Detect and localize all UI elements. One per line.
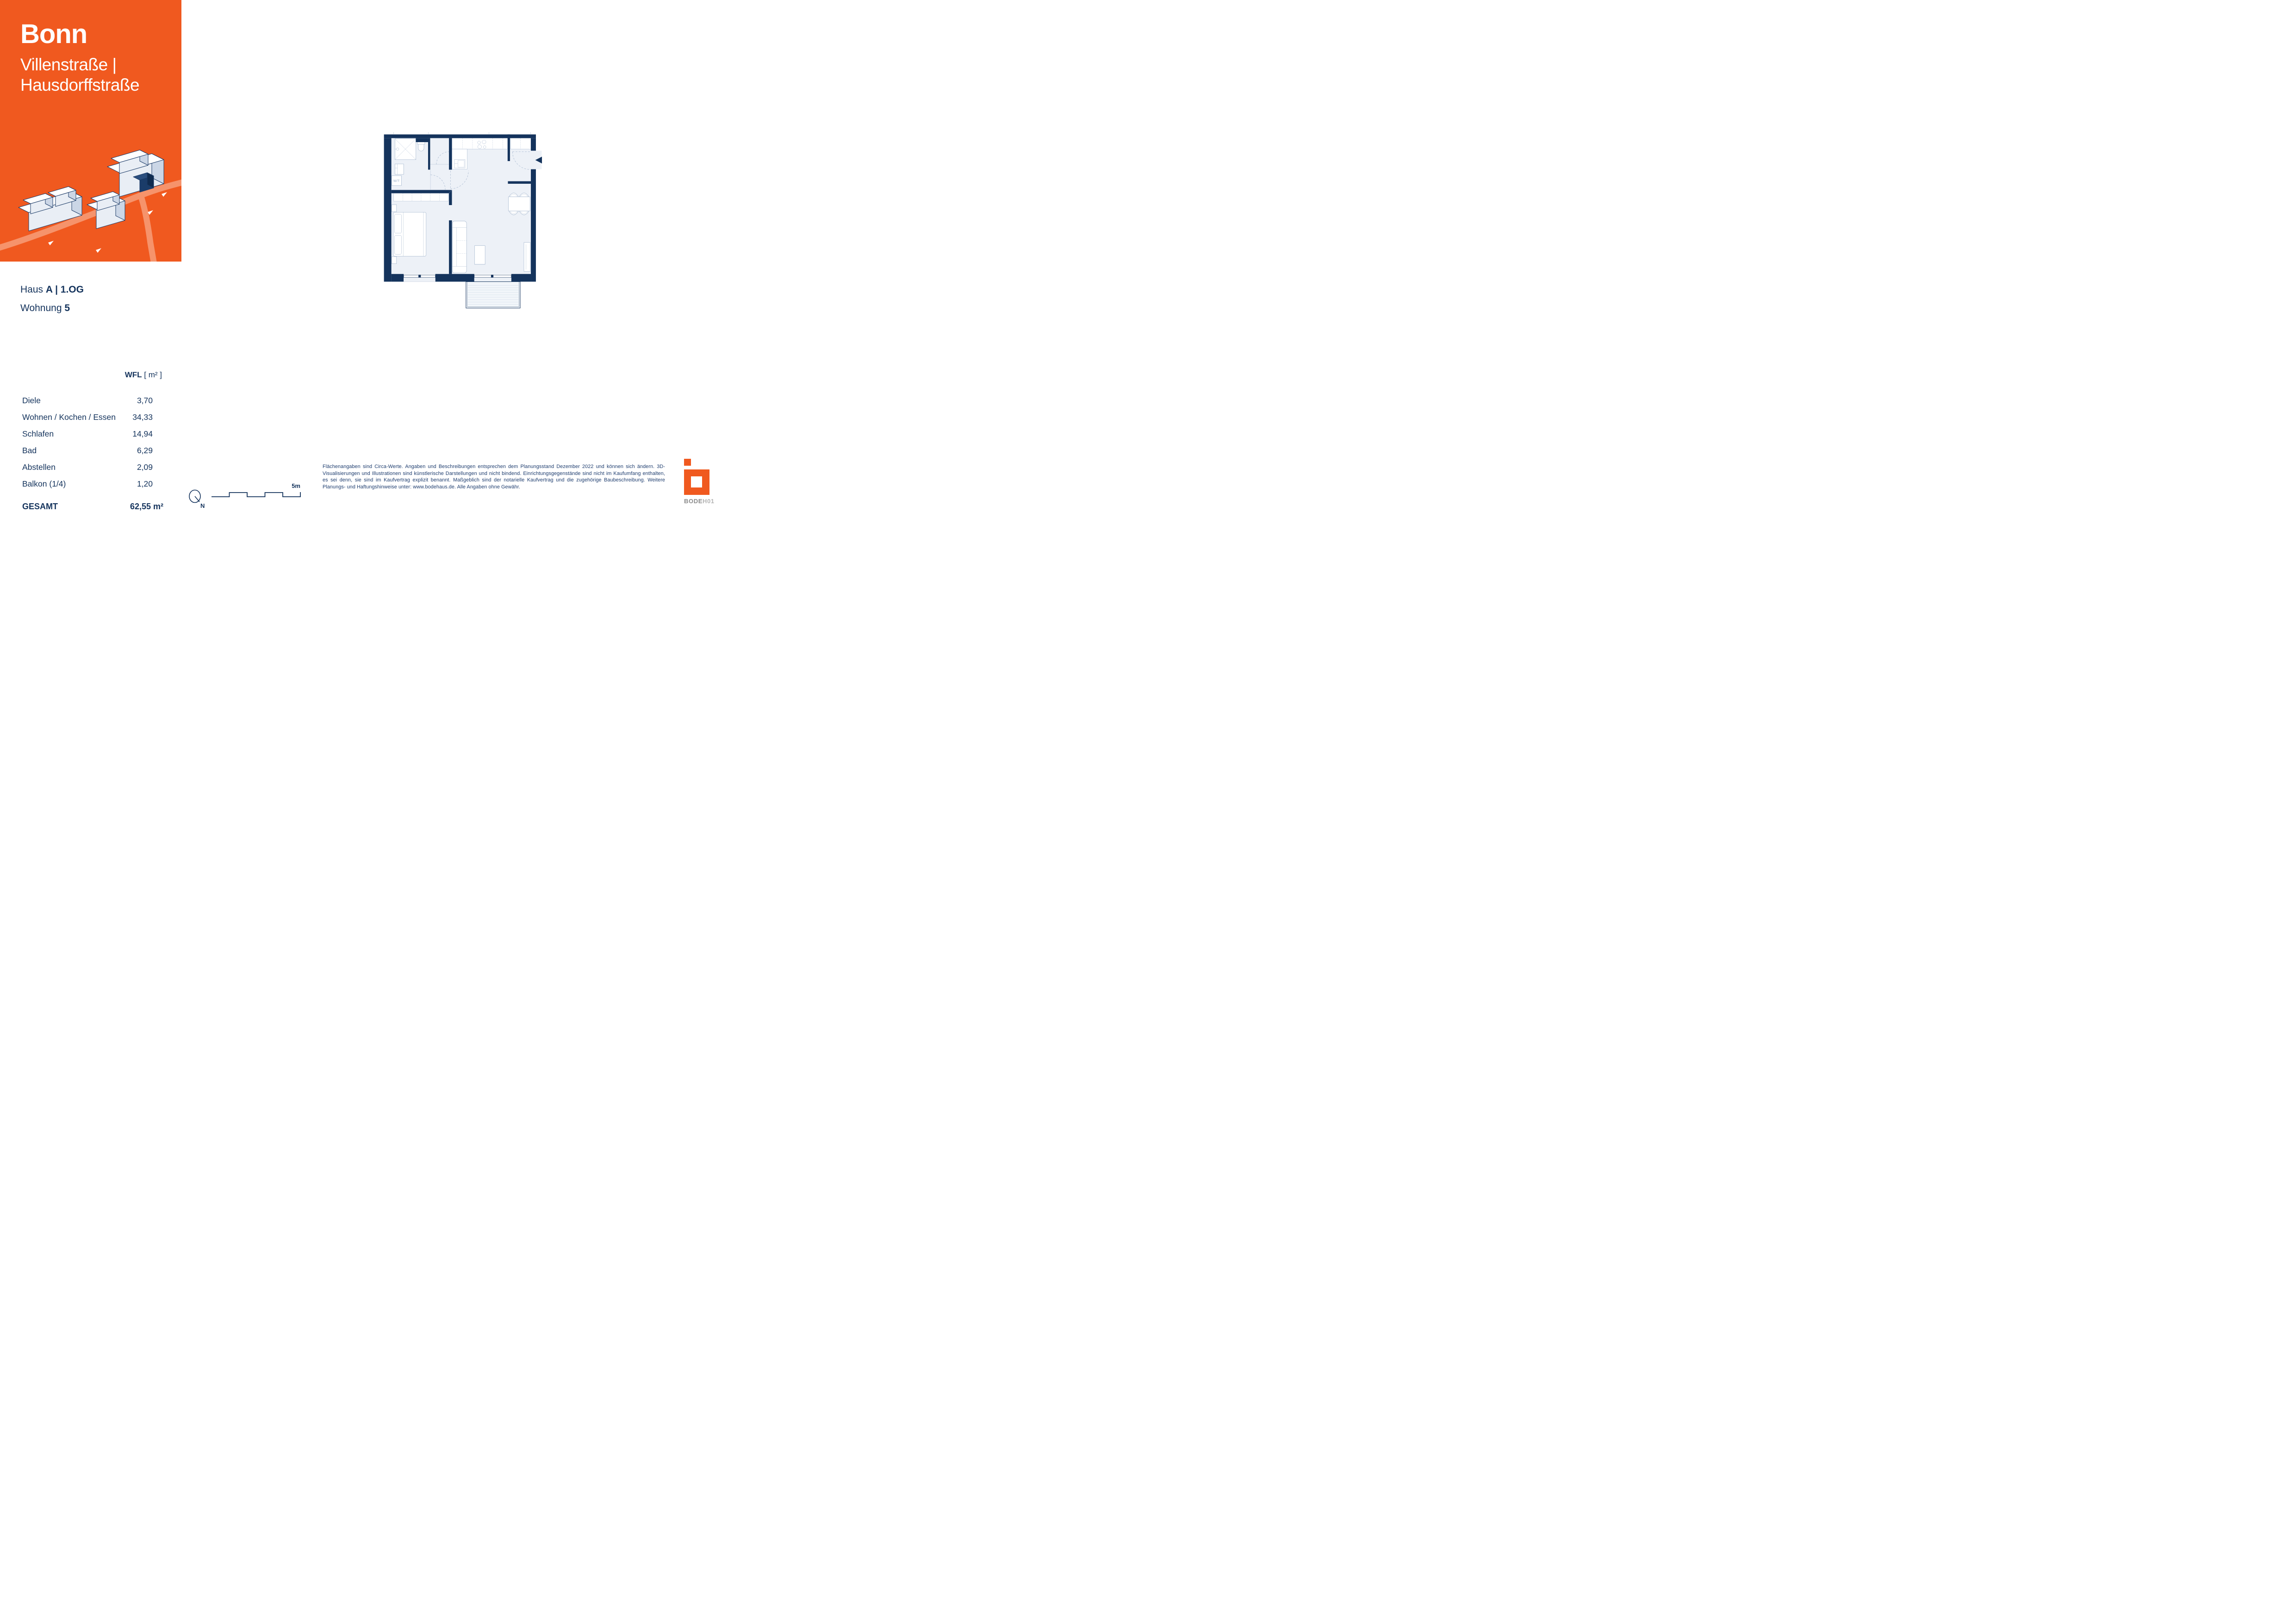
logo-text-h01: H01 <box>703 498 715 505</box>
room-label: Diele <box>22 396 41 406</box>
total-label: GESAMT <box>22 502 58 512</box>
street-line-2: Hausdorffstraße <box>20 75 139 95</box>
unit-haus-line: Haus A | 1.OG <box>20 281 84 299</box>
room-area: 1,20 <box>137 479 153 489</box>
floor-plan: W/T <box>380 131 542 309</box>
room-area: 3,70 <box>137 396 153 406</box>
site-illustration-3d <box>0 117 181 262</box>
unit-wohnung-line: Wohnung 5 <box>20 299 84 318</box>
street-network <box>0 182 181 262</box>
table-row: Schlafen 14,94 <box>22 429 153 439</box>
coffee-table <box>474 246 485 264</box>
room-label: Abstellen <box>22 462 56 472</box>
unit-info: Haus A | 1.OG Wohnung 5 <box>20 281 84 318</box>
room-label: Bad <box>22 446 37 456</box>
logo-wordmark: BODEH01 <box>684 498 715 505</box>
wohnung-label: Wohnung <box>20 303 64 313</box>
wardrobe <box>393 193 448 201</box>
logo-text-bode: BODE <box>684 498 703 505</box>
bodeh01-logo: BODEH01 <box>684 459 716 505</box>
room-area: 14,94 <box>132 429 153 439</box>
project-city: Bonn <box>20 19 87 50</box>
disclaimer-text: Flächenangaben sind Circa-Werte. Angaben… <box>323 463 665 490</box>
bed <box>393 212 426 256</box>
room-area: 34,33 <box>132 412 153 422</box>
brand-panel: Bonn Villenstraße | Hausdorffstraße <box>0 0 181 262</box>
table-row: Diele 3,70 <box>22 396 153 406</box>
table-row: Abstellen 2,09 <box>22 462 153 473</box>
sideboard <box>524 243 530 272</box>
street-line-1: Villenstraße | <box>20 55 139 75</box>
haus-label: Haus <box>20 284 46 295</box>
scale-bar: 5m <box>208 481 305 500</box>
wfl-unit: [ m² ] <box>142 370 162 379</box>
building-middle <box>87 192 125 229</box>
table-row: Balkon (1/4) 1,20 <box>22 479 153 489</box>
entry-closet <box>510 138 531 149</box>
kitchen-sink-icon <box>454 159 465 168</box>
sofa <box>452 221 467 273</box>
total-area: 62,55 m² <box>130 502 163 512</box>
sink-icon <box>395 164 404 175</box>
north-compass-icon: N <box>187 487 208 510</box>
logo-dot-icon <box>684 459 691 466</box>
project-street: Villenstraße | Hausdorffstraße <box>20 55 139 95</box>
logo-square-hole <box>691 476 702 487</box>
area-table-header: WFL [ m² ] <box>22 370 162 380</box>
dimension-ticks <box>393 132 530 134</box>
room-label: Wohnen / Kochen / Essen <box>22 412 116 422</box>
room-area: 2,09 <box>137 462 153 472</box>
north-label: N <box>200 502 205 509</box>
room-area: 6,29 <box>137 446 153 456</box>
washer-dryer-label: W/T <box>393 180 400 183</box>
nightstand <box>392 256 397 263</box>
wfl-label: WFL <box>125 370 142 379</box>
shower-icon <box>395 139 416 160</box>
table-row: Wohnen / Kochen / Essen 34,33 <box>22 412 153 423</box>
balcony <box>466 281 520 308</box>
table-total-row: GESAMT 62,55 m² <box>22 502 163 513</box>
room-label: Schlafen <box>22 429 54 439</box>
table-row: Bad 6,29 <box>22 446 153 456</box>
wohnung-value: 5 <box>64 303 70 313</box>
haus-value: A | 1.OG <box>46 284 84 295</box>
nightstand <box>392 205 397 212</box>
scale-label: 5m <box>292 482 300 489</box>
toilet-icon <box>417 142 425 151</box>
room-label: Balkon (1/4) <box>22 479 66 489</box>
